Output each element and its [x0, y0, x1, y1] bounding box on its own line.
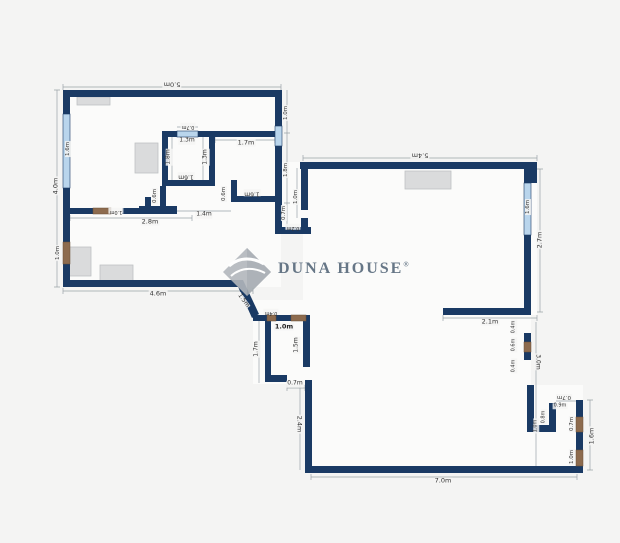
- brand-name-text: DUNA HOUSE: [278, 260, 403, 277]
- wall-segment: [443, 308, 531, 315]
- dimension-line: [311, 474, 577, 480]
- wall-segment: [63, 90, 70, 116]
- dimension-line: [537, 169, 543, 312]
- floor-lower-room: [305, 315, 531, 473]
- dimension-line: [63, 84, 281, 90]
- window: [524, 183, 531, 235]
- wall-segment: [524, 352, 531, 360]
- wall-segment: [576, 432, 583, 450]
- window-opening: [177, 131, 198, 137]
- furniture-radiator: [77, 97, 110, 105]
- dimension-line: [303, 155, 537, 161]
- wall-segment: [162, 131, 168, 186]
- wall-segment: [162, 180, 215, 186]
- wall-segment: [63, 186, 70, 242]
- wall-segment: [305, 380, 312, 473]
- furniture-block: [68, 247, 91, 276]
- brand-name: DUNA HOUSE®: [278, 260, 409, 278]
- wall-segment: [576, 400, 583, 417]
- wall-segment: [160, 186, 166, 208]
- wall-segment: [275, 90, 282, 233]
- dimension-line: [587, 400, 593, 470]
- window: [275, 126, 282, 146]
- wall-segment: [524, 162, 537, 183]
- wall-segment: [231, 196, 282, 202]
- wall-segment: [301, 218, 308, 234]
- door: [93, 208, 111, 214]
- wall-segment: [527, 385, 534, 432]
- door: [524, 342, 531, 352]
- door: [576, 417, 583, 432]
- floorplan-page: DUNA HOUSE® 5.0m4.0m1.6m1.0m2.8m1.0m0.7m…: [0, 0, 620, 543]
- wall-segment: [265, 375, 287, 382]
- wall-segment: [301, 162, 308, 210]
- wall-segment: [305, 466, 583, 473]
- floor-corridor: [253, 300, 310, 384]
- door: [291, 315, 306, 321]
- wall-segment: [122, 208, 177, 214]
- wall-segment: [63, 280, 242, 287]
- wall-segment: [209, 131, 215, 186]
- wall-segment: [276, 315, 291, 321]
- furniture-radiator: [405, 171, 451, 189]
- registered-mark: ®: [403, 261, 408, 269]
- wall-segment: [549, 403, 556, 432]
- brand-watermark: DUNA HOUSE®: [222, 246, 422, 301]
- wall-segment: [63, 90, 282, 97]
- dimension-line: [54, 90, 60, 287]
- wall-segment: [524, 235, 531, 315]
- wall-segment: [70, 208, 93, 214]
- dimension-line: [287, 385, 305, 391]
- door: [576, 450, 583, 466]
- wall-segment: [303, 315, 310, 367]
- window: [63, 114, 70, 188]
- door: [267, 315, 276, 321]
- furniture-cabinet: [135, 143, 158, 173]
- door: [63, 242, 70, 264]
- wall-segment: [300, 162, 537, 169]
- wall-segment: [265, 315, 271, 382]
- wall-segment: [524, 333, 531, 342]
